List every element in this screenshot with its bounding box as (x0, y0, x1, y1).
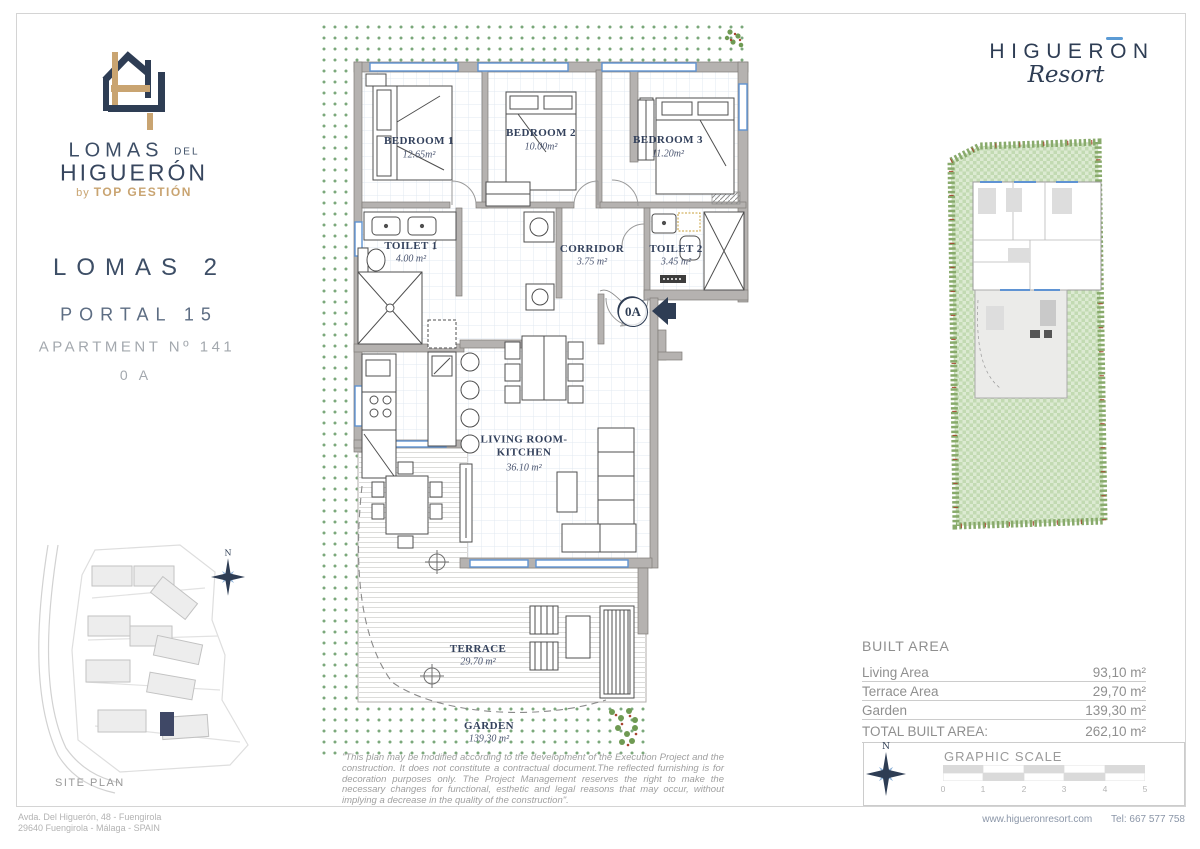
brand-name-main: LOMAS (68, 140, 163, 162)
room-label-bedroom3: BEDROOM 3 (633, 134, 703, 146)
highlighted-building (160, 712, 174, 736)
entrance-unit-badge: 0A (618, 297, 648, 327)
room-label-corridor: CORRIDOR (560, 243, 624, 255)
room-area-bedroom3: 11.20m² (652, 149, 684, 160)
room-area-terrace: 29.70 m² (460, 657, 495, 668)
footer-address: Avda. Del Higuerón, 48 - Fuengirola 2964… (18, 812, 161, 834)
row-value: 93,10 m² (1093, 665, 1146, 680)
footer-address-line2: 29640 Fuengirola - Málaga - SPAIN (18, 823, 161, 834)
brand-name-del: DEL (174, 147, 199, 158)
brand-byline: by TOP GESTIÓN (76, 185, 192, 199)
room-label-toilet1: TOILET 1 (384, 240, 437, 252)
unit-building: LOMAS 2 (53, 254, 227, 282)
table-row: Garden 139,30 m² (862, 701, 1146, 720)
room-area-corridor: 3.75 m² (577, 257, 607, 268)
footer-address-line1: Avda. Del Higuerón, 48 - Fuengirola (18, 812, 161, 823)
room-area-living-kitchen: 36.10 m² (506, 463, 541, 474)
room-label-terrace: TERRACE (450, 643, 507, 655)
built-area-title: BUILT AREA (862, 638, 1146, 663)
resort-logo-script: Resort (1028, 62, 1105, 88)
footer-website: www.higueronresort.com (982, 814, 1092, 825)
scale-tick: 3 (1062, 784, 1067, 794)
scale-tick: 4 (1103, 784, 1108, 794)
unit-portal: PORTAL 15 (60, 305, 218, 326)
resort-logo-macron (1106, 37, 1123, 40)
brand-house-logo-icon (103, 52, 165, 130)
room-area-bedroom2: 10.00m² (525, 142, 558, 153)
room-label-bedroom2: BEDROOM 2 (506, 127, 576, 139)
brand-byline-brand: TOP GESTIÓN (94, 185, 192, 199)
graphic-scale-bar (943, 765, 1145, 781)
row-value: 29,70 m² (1093, 684, 1146, 699)
graphic-scale-title: GRAPHIC SCALE (944, 749, 1062, 764)
table-row: Terrace Area 29,70 m² (862, 682, 1146, 701)
plot-plan-drawing (951, 142, 1104, 526)
footer-contact: www.higueronresort.com Tel: 667 577 758 (966, 814, 1185, 825)
room-area-toilet2: 3.45 m² (661, 257, 691, 268)
row-value: 262,10 m² (1085, 724, 1146, 739)
table-row-total: TOTAL BUILT AREA: 262,10 m² (862, 720, 1146, 743)
row-label: Living Area (862, 665, 929, 680)
site-plan-drawing (39, 545, 248, 793)
row-value: 139,30 m² (1085, 703, 1146, 718)
scale-tick: 0 (941, 784, 946, 794)
room-label-toilet2: TOILET 2 (649, 243, 702, 255)
resort-logo-name: HIGUERON (989, 40, 1154, 64)
brand-byline-by: by (76, 187, 90, 199)
room-label-bedroom1: BEDROOM 1 (384, 135, 454, 147)
scale-tick: 2 (1022, 784, 1027, 794)
row-label: TOTAL BUILT AREA: (862, 724, 988, 739)
footer-phone: Tel: 667 577 758 (1111, 814, 1185, 825)
row-label: Terrace Area (862, 684, 939, 699)
site-plan-north-label: N (225, 549, 232, 558)
room-area-garden: 139,30 m² (469, 734, 509, 745)
scale-tick: 1 (981, 784, 986, 794)
room-area-toilet1: 4.00 m² (396, 254, 426, 265)
floor-plan-sheet: LOMAS DEL HIGUERÓN by TOP GESTIÓN LOMAS … (0, 0, 1200, 849)
scale-tick: 5 (1143, 784, 1148, 794)
site-plan-label: SITE PLAN (55, 777, 125, 789)
scale-north-label: N (882, 742, 890, 752)
room-area-bedroom1: 12.65m² (403, 150, 436, 161)
table-row: Living Area 93,10 m² (862, 663, 1146, 682)
built-area-table: BUILT AREA Living Area 93,10 m² Terrace … (862, 638, 1146, 743)
room-label-garden: GARDEN (464, 720, 514, 732)
room-label-living-kitchen: LIVING ROOM-KITCHEN (468, 433, 580, 458)
disclaimer-text: "This plan may be modified according to … (342, 753, 724, 807)
unit-apartment-number: APARTMENT Nº 141 (39, 339, 236, 356)
brand-name-line2: HIGUERÓN (60, 160, 208, 187)
row-label: Garden (862, 703, 907, 718)
unit-code: 0 A (120, 367, 152, 383)
